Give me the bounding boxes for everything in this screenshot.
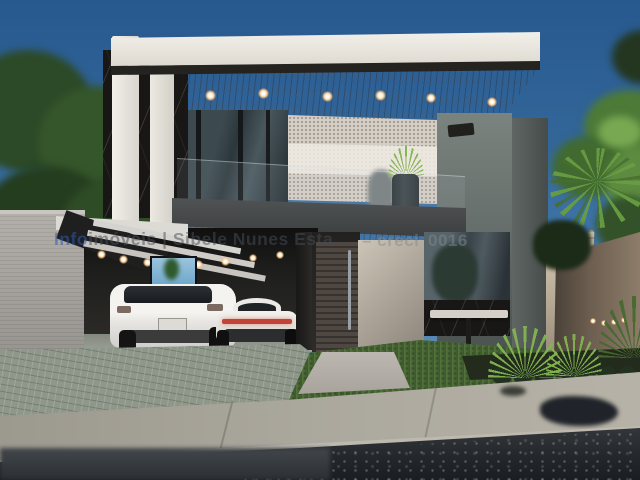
sports-car-taillight-strip (222, 319, 292, 324)
carport-light (249, 254, 257, 262)
watermark-creci-label: – creci (362, 231, 419, 250)
soffit-downlight (205, 90, 216, 101)
carport-light (119, 255, 128, 264)
soffit-downlight (375, 90, 386, 101)
watermark-brand: Infoimóveis | Sibele Nunes Esta (54, 229, 333, 250)
suv-taillight (117, 306, 131, 313)
road-shadow-patch (0, 448, 330, 480)
watermark-creci: – creci (362, 231, 419, 251)
carport-light (97, 250, 106, 259)
watermark-brand-prefix: Info (54, 229, 88, 249)
palm-head (550, 148, 640, 228)
sports-car-bumper (224, 329, 290, 342)
wall-spot-light (590, 318, 596, 324)
glass-tree-reflection (432, 244, 478, 302)
soffit-downlight (322, 91, 333, 102)
suv-bumper (126, 330, 218, 343)
watermark-creci-number: 0016 (428, 231, 468, 251)
suv-rear-window (124, 286, 212, 303)
watermark-creci-number-text: 0016 (428, 231, 468, 250)
carport-light (276, 251, 284, 259)
right-tree-highlight (598, 116, 640, 148)
curb-chipped-patch (540, 396, 618, 426)
door-handle (348, 250, 351, 330)
bench (430, 310, 508, 318)
entry-wall (358, 240, 424, 352)
carport-light (221, 257, 230, 266)
soffit-downlight (426, 93, 436, 103)
architectural-render-photo: Infoimóveis | Sibele Nunes Esta – creci … (0, 0, 640, 480)
curb-debris (500, 386, 526, 396)
soffit-downlight (258, 88, 269, 99)
soffit-downlight (487, 97, 497, 107)
dark-palm-silhouette (533, 220, 591, 270)
front-door (316, 242, 358, 352)
carport-window-plant (164, 258, 179, 280)
watermark-brand-rest: imóveis | Sibele Nunes Esta (88, 229, 333, 249)
